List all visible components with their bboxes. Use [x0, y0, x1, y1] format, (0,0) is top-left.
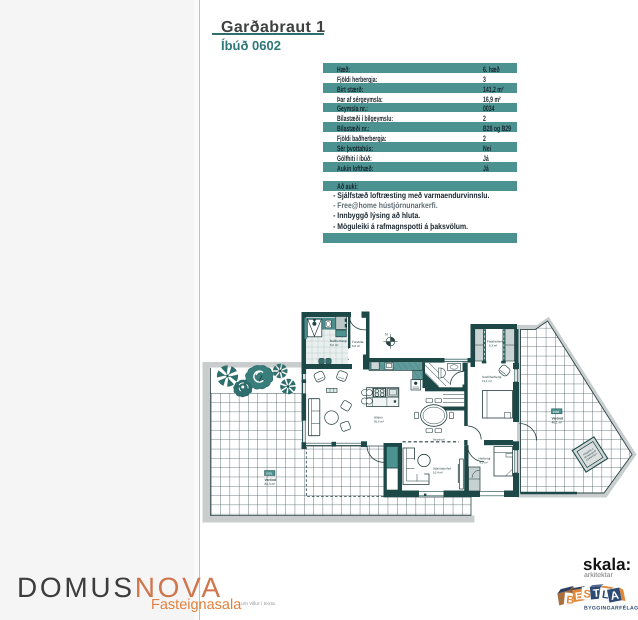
svg-text:9,2 m²: 9,2 m² [480, 461, 488, 465]
svg-text:1902: 1902 [553, 410, 560, 414]
svg-text:Rennihurð: Rennihurð [433, 438, 445, 441]
svg-text:46,1 m²: 46,1 m² [552, 421, 563, 425]
svg-text:N: N [385, 333, 388, 337]
svg-text:1901: 1901 [266, 472, 273, 476]
svg-text:S: S [583, 588, 591, 600]
svg-text:5,8 m²: 5,8 m² [352, 344, 360, 348]
svg-text:BYGGINGARFÉLAG: BYGGINGARFÉLAG [584, 605, 638, 612]
svg-text:5,6 m²: 5,6 m² [330, 343, 338, 347]
svg-text:84,3 m²: 84,3 m² [265, 482, 276, 486]
svg-text:10,4 m²: 10,4 m² [433, 471, 443, 475]
svg-text:6,3 m²: 6,3 m² [489, 344, 497, 348]
svg-text:56,6 m²: 56,6 m² [374, 420, 384, 424]
svg-text:12,1 m²: 12,1 m² [482, 379, 492, 383]
